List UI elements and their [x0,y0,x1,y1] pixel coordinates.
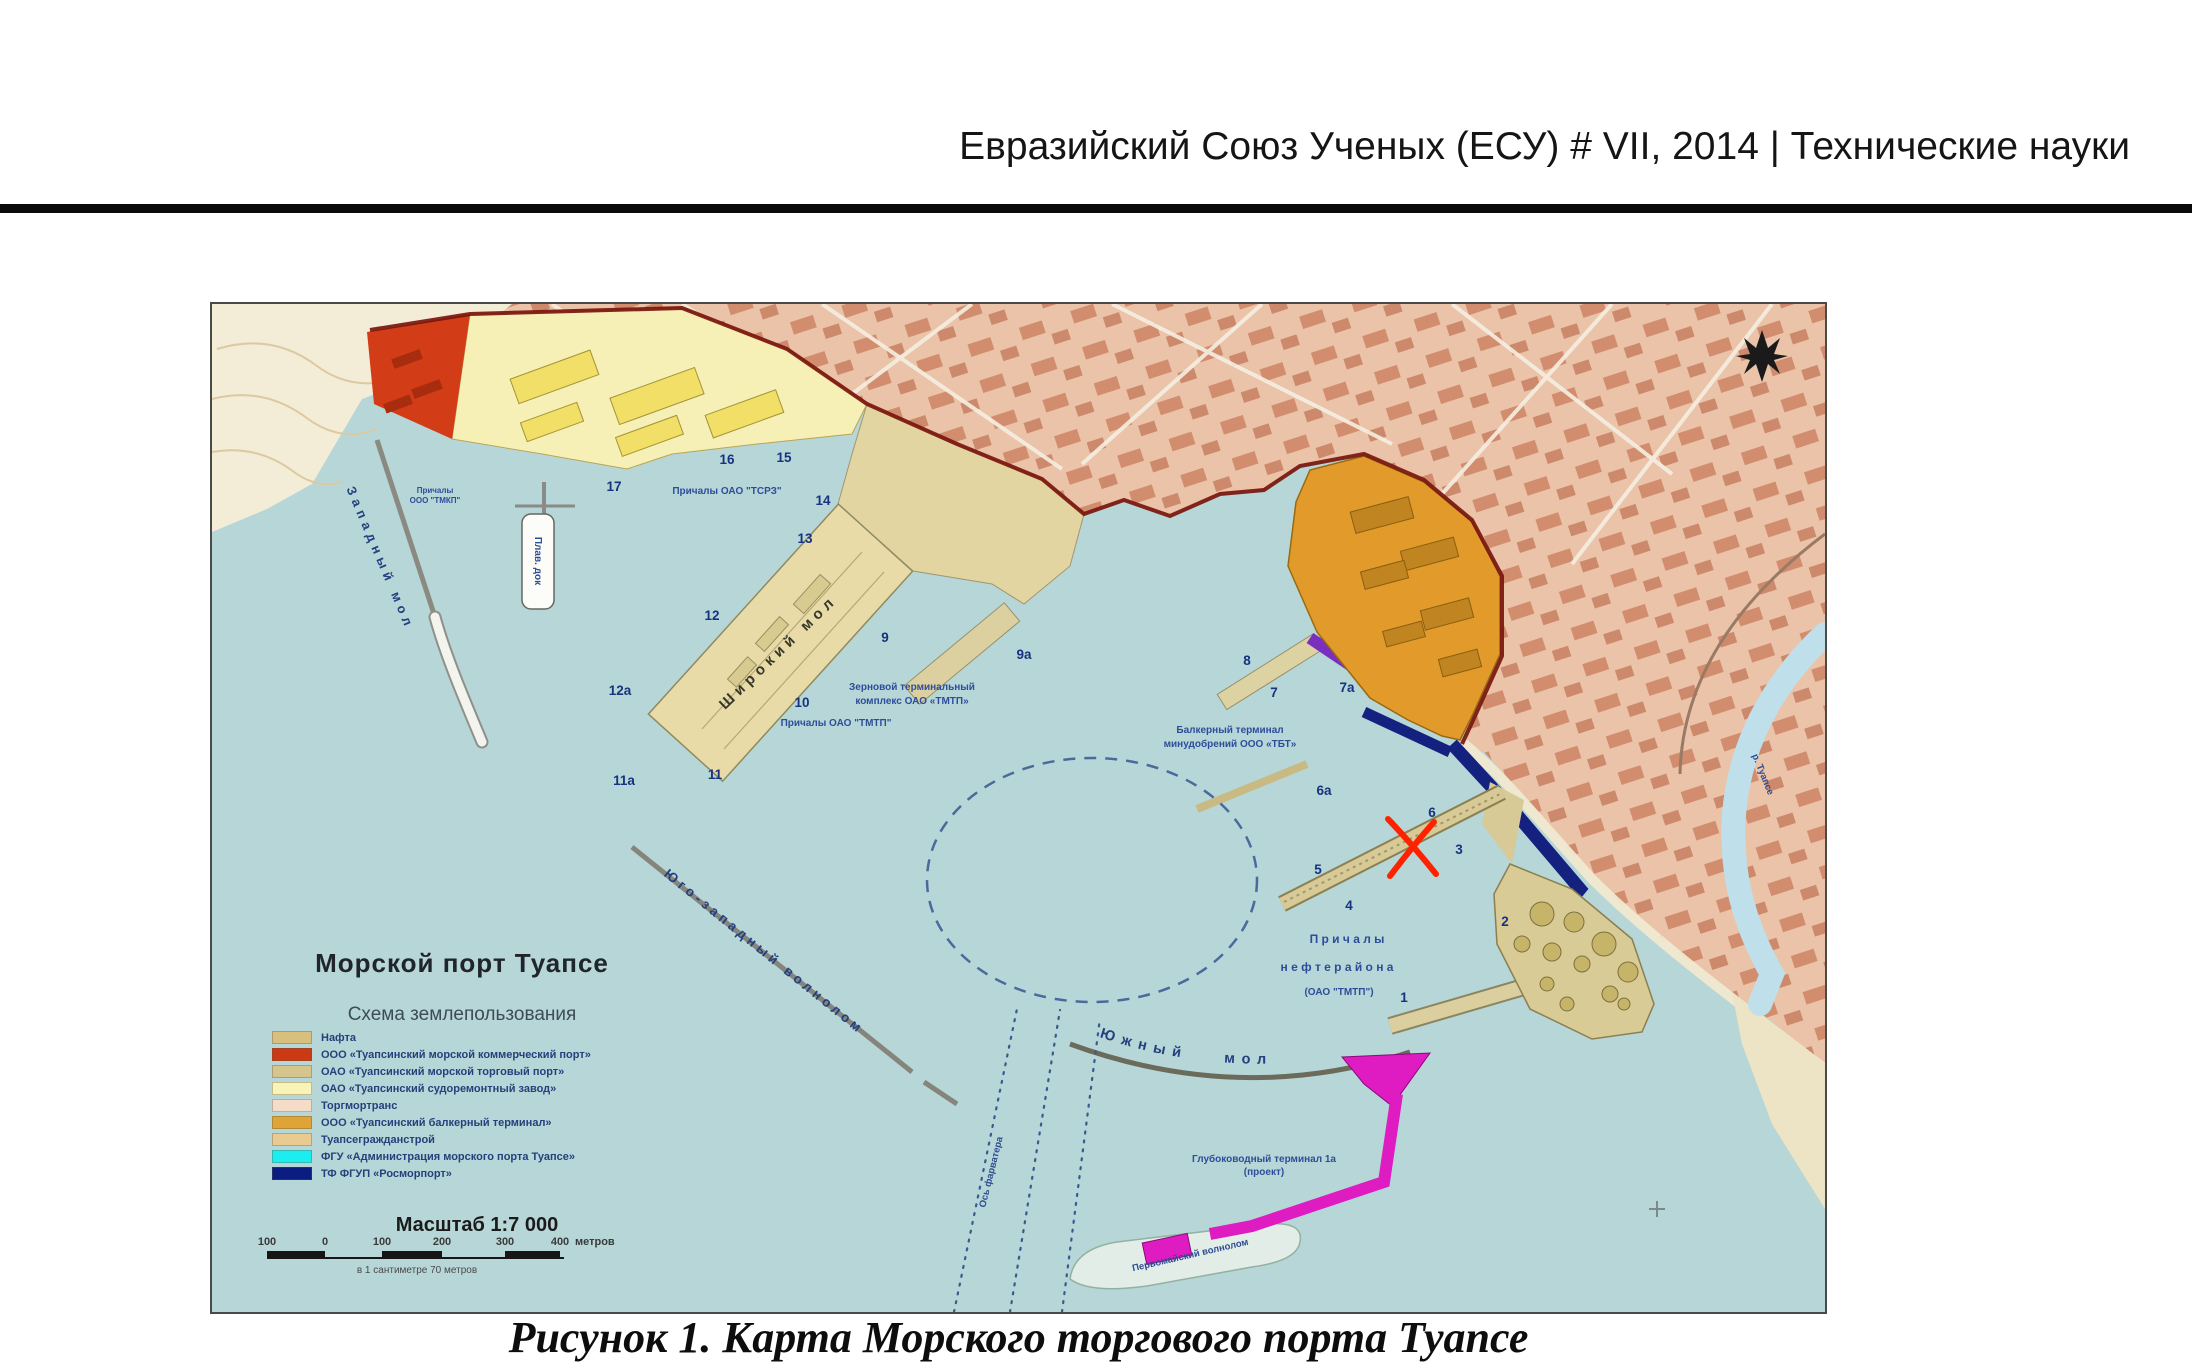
berth-number: 1 [1400,990,1408,1005]
berth-number: 15 [776,450,792,465]
journal-header: Евразийский Союз Ученых (ЕСУ) # VII, 201… [530,125,2130,169]
tmkp-berths-label-2: ООО "ТМКП" [410,496,461,505]
scale-unit: метров [575,1236,615,1248]
scale-tick: 100 [258,1236,276,1248]
map-scale: Масштаб 1:7 000 100 0 100 200 300 400 ме… [267,1214,687,1276]
scale-segment [505,1251,560,1259]
berth-number: 12 [704,608,719,623]
scale-tick: 200 [433,1236,451,1248]
map-legend: Нафта ООО «Туапсинский морской коммерчес… [272,1029,712,1182]
berth-number: 7а [1339,680,1355,695]
legend-label: Нафта [321,1032,356,1044]
oil-berths-label-1: П р и ч а л ы [1310,932,1385,946]
legend-item: ОАО «Туапсинский судоремонтный завод» [272,1080,712,1097]
scale-tick: 400 [551,1236,569,1248]
legend-label: Туапсегражданстрой [321,1134,435,1146]
grain-terminal-label-2: комплекс ОАО «ТМТП» [855,696,969,707]
tmkp-berths-label-1: Причалы [417,486,454,495]
figure-port-map: Западный мол Широкий мол Юго-западный во… [210,302,1827,1314]
grain-terminal-label-1: Зерновой терминальный [849,682,975,693]
berth-number: 11 [708,767,723,782]
map-title: Морской порт Туапсе [252,948,672,979]
figure-caption: Рисунок 1. Карта Морского торгового порт… [210,1312,1827,1363]
legend-label: ОАО «Туапсинский морской торговый порт» [321,1066,564,1078]
berth-number: 16 [719,452,735,467]
legend-swatch [272,1082,312,1095]
scale-segment [382,1251,442,1259]
berth-number: 11а [613,773,635,788]
scale-tick: 300 [496,1236,514,1248]
berth-number: 13 [797,531,813,546]
scale-note: в 1 сантиметре 70 метров [267,1265,567,1276]
legend-swatch [272,1031,312,1044]
legend-item: ФГУ «Администрация морского порта Туапсе… [272,1148,712,1165]
legend-item: ТФ ФГУП «Росморпорт» [272,1165,712,1182]
berth-number: 7 [1270,685,1278,700]
berth-number: 9 [881,630,889,645]
tmtp-berths-label: Причалы ОАО "ТМТП" [781,718,892,729]
scale-title: Масштаб 1:7 000 [267,1214,687,1237]
header-divider [0,204,2192,213]
berth-number: 6 [1428,805,1436,820]
legend-item: Туапсегражданстрой [272,1131,712,1148]
legend-item: ООО «Туапсинский балкерный терминал» [272,1114,712,1131]
legend-swatch [272,1167,312,1180]
legend-swatch [272,1116,312,1129]
legend-label: ООО «Туапсинский балкерный терминал» [321,1117,552,1129]
bulk-terminal-label-2: минудобрений ООО «ТБТ» [1164,738,1297,750]
legend-swatch [272,1048,312,1061]
berth-number: 14 [815,493,831,508]
legend-label: ФГУ «Администрация морского порта Туапсе… [321,1151,575,1163]
berth-number: 10 [794,695,809,710]
berth-number: 9а [1016,647,1032,662]
scale-tick: 100 [373,1236,391,1248]
berth-number: 12а [609,683,632,698]
floating-dock-label: Плав. док [532,537,543,586]
deepwater-terminal-label-2: (проект) [1244,1167,1284,1178]
berth-number: 17 [606,479,621,494]
legend-label: ООО «Туапсинский морской коммерческий по… [321,1049,591,1061]
berth-number: 6а [1316,783,1332,798]
berth-number: 2 [1501,914,1509,929]
berth-number: 8 [1243,653,1251,668]
legend-label: ТФ ФГУП «Росморпорт» [321,1168,452,1180]
tsrz-berths-label: Причалы ОАО "ТСРЗ" [672,486,782,497]
berth-number: 4 [1345,898,1353,913]
legend-label: ОАО «Туапсинский судоремонтный завод» [321,1083,556,1095]
oil-berths-label-2: н е ф т е р а й о н а [1281,960,1394,974]
legend-swatch [272,1150,312,1163]
berth-number: 3 [1455,842,1463,857]
legend-swatch [272,1133,312,1146]
deepwater-terminal-label-1: Глубоководный терминал 1а [1192,1153,1336,1165]
oil-berths-label-3: (ОАО "ТМТП") [1304,987,1373,998]
legend-item: Торгмортранс [272,1097,712,1114]
legend-item: ООО «Туапсинский морской коммерческий по… [272,1046,712,1063]
scale-bar: 100 0 100 200 300 400 метров [267,1251,560,1259]
berth-number: 5 [1314,862,1322,877]
legend-swatch [272,1099,312,1112]
legend-item: ОАО «Туапсинский морской торговый порт» [272,1063,712,1080]
legend-item: Нафта [272,1029,712,1046]
scale-segment [267,1251,325,1259]
legend-label: Торгмортранс [321,1100,397,1112]
scale-tick: 0 [322,1236,328,1248]
map-subtitle: Схема землепользования [252,1004,672,1026]
bulk-terminal-label-1: Балкерный терминал [1176,725,1283,736]
legend-swatch [272,1065,312,1078]
